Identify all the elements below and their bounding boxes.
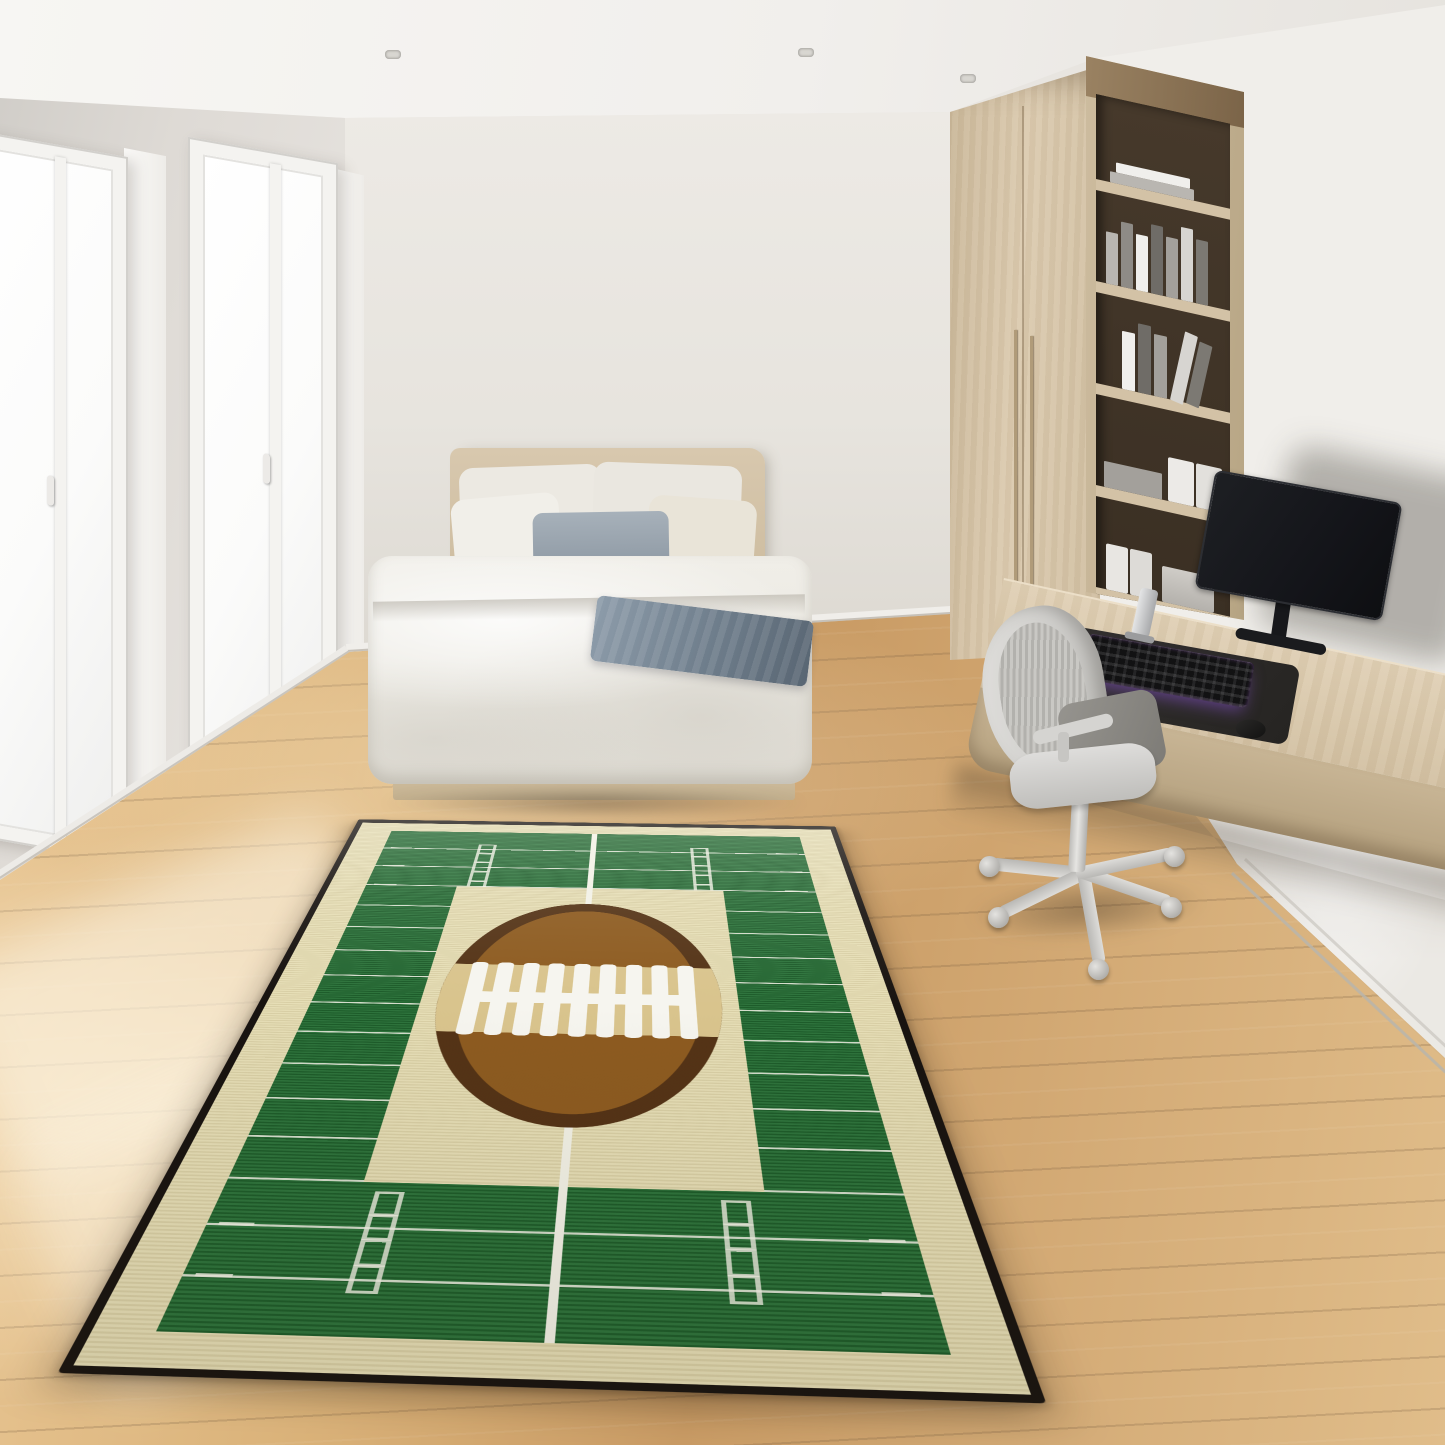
bedroom-scene [0,0,1445,1445]
chair-caster [1161,897,1182,918]
book [1196,239,1208,306]
book [1181,227,1193,303]
book [1136,234,1148,293]
magazine-file [1168,457,1194,507]
book [1151,224,1163,296]
wardrobe-door-seam [1022,106,1024,654]
chair-armrest-post [1058,732,1069,762]
book [1154,334,1167,399]
window-mullion [55,156,66,840]
window-1 [0,127,128,863]
wardrobe [948,66,1100,662]
chair-caster [988,907,1009,928]
book [1106,231,1118,286]
chair-caster [979,856,1000,877]
book [1166,237,1178,300]
magazine-file [1106,543,1128,594]
book [1138,323,1151,395]
window-reveal-left [124,148,166,856]
spotlight-icon [385,50,401,59]
book-stack [1104,461,1162,500]
book [1122,331,1135,392]
window-handle [47,475,54,506]
bed [365,440,815,820]
spotlight-icon [960,74,976,83]
bed-shadow [379,788,809,818]
window-handle [263,453,270,484]
book [1121,222,1133,290]
chair-caster [1088,959,1109,980]
spotlight-icon [798,48,814,57]
